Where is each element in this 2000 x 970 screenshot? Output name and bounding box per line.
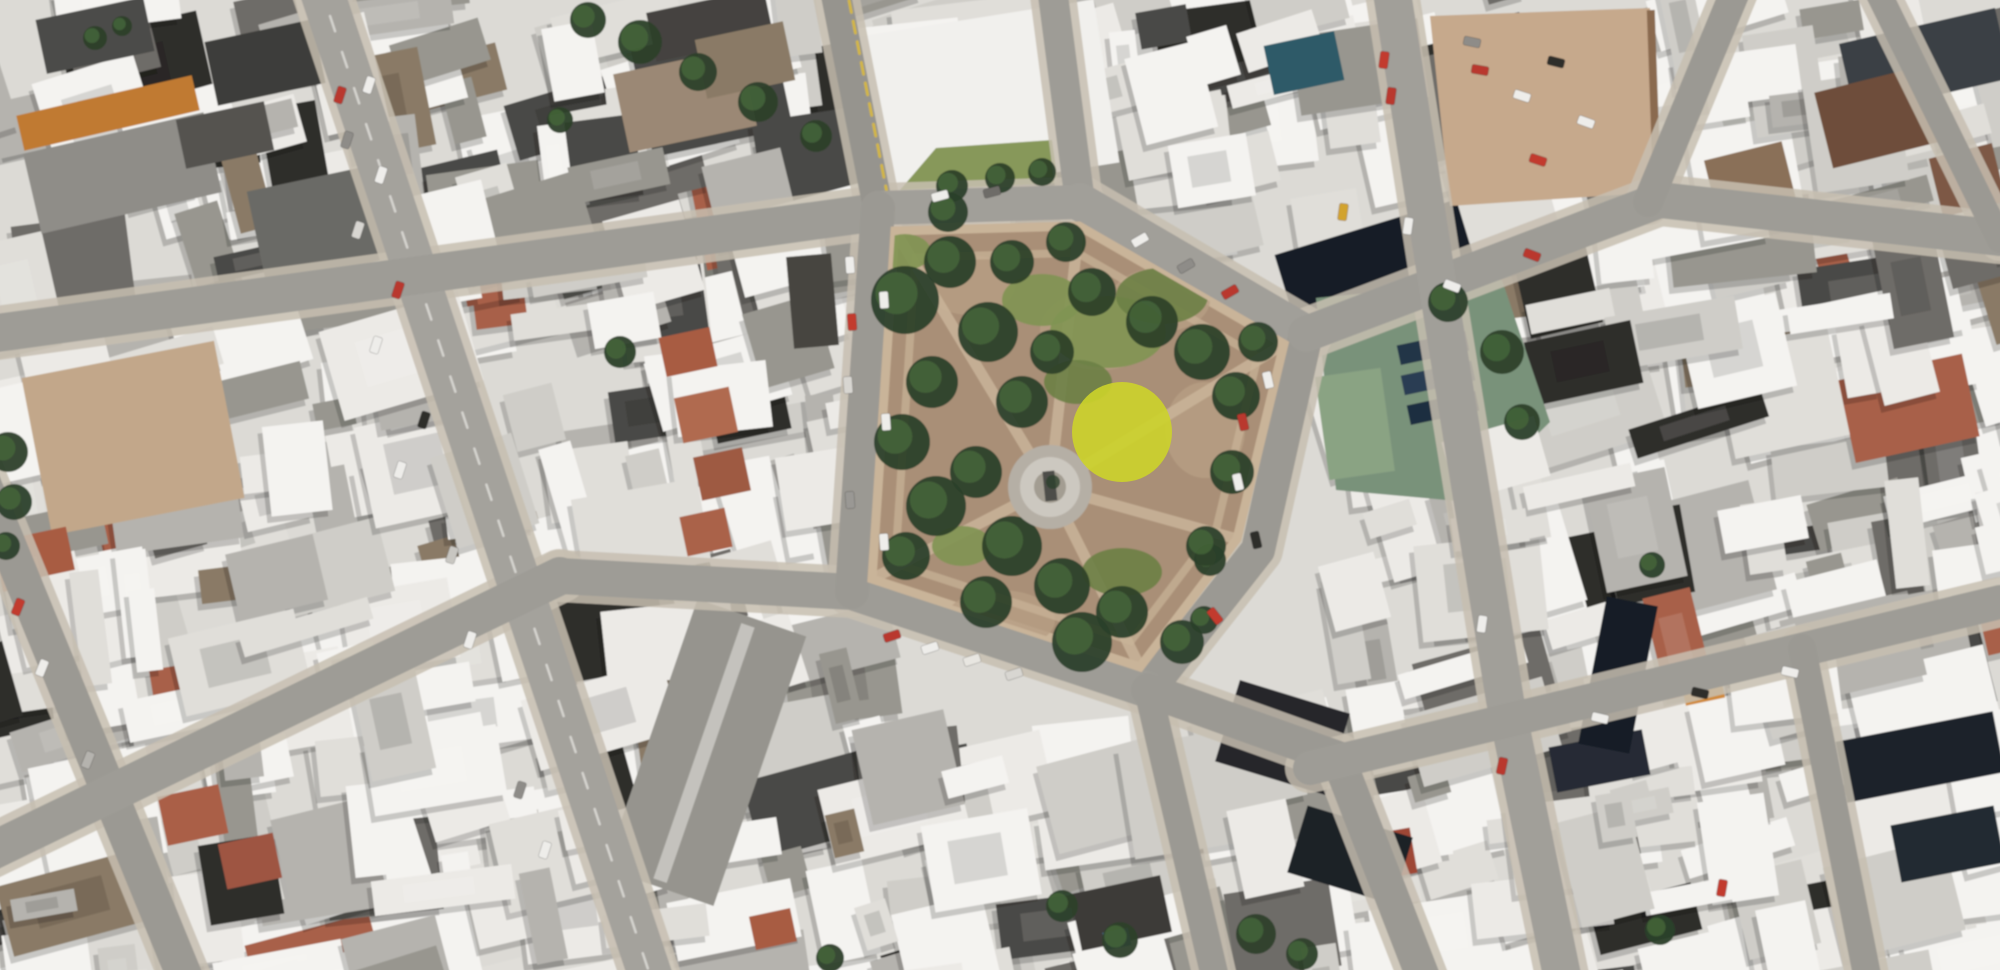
tree-canopy-highlight (1099, 591, 1131, 623)
tree-canopy-highlight (987, 166, 1006, 185)
parked-car (1385, 87, 1396, 105)
tree-canopy-highlight (1071, 272, 1101, 302)
tree-canopy-highlight (741, 86, 766, 111)
selected-location-marker[interactable] (1072, 382, 1172, 482)
tree-canopy-highlight (1288, 941, 1308, 961)
tree-canopy-highlight (1033, 334, 1060, 361)
tree-canopy-highlight (993, 244, 1020, 271)
tree-canopy-highlight (927, 241, 959, 273)
tree-canopy-highlight (986, 521, 1023, 558)
parked-car (1476, 615, 1487, 633)
tree-canopy-highlight (1192, 609, 1209, 626)
tree-canopy-highlight (1506, 407, 1528, 429)
tree-canopy-highlight (1056, 617, 1093, 654)
tree-canopy-highlight (621, 24, 648, 51)
tree-canopy-highlight (1129, 301, 1161, 333)
tree-canopy-highlight (962, 307, 999, 344)
tree-canopy-highlight (953, 451, 985, 483)
tree-canopy-highlight (1048, 893, 1068, 913)
tree-canopy-highlight (909, 361, 941, 393)
tree-canopy-highlight (1215, 376, 1245, 406)
aerial-imagery (0, 0, 2000, 970)
parked-car (847, 313, 857, 331)
tree-canopy-highlight (1104, 925, 1126, 947)
parked-car (845, 256, 855, 274)
parked-car (879, 291, 889, 309)
tree-canopy-highlight (1241, 326, 1266, 351)
tree-canopy-highlight (1030, 161, 1047, 178)
park-north-street (878, 202, 1080, 208)
tree-canopy-highlight (572, 5, 594, 27)
building-footprint (262, 420, 333, 516)
parked-car (843, 376, 853, 394)
tree-canopy-highlight (1038, 563, 1073, 598)
parked-car (1402, 217, 1413, 235)
tree-canopy-highlight (1163, 624, 1190, 651)
parked-car (1337, 203, 1348, 221)
tree-canopy-highlight (1641, 554, 1657, 570)
imagery-layer (0, 0, 2000, 970)
tree-canopy-highlight (606, 339, 626, 359)
tree-canopy-highlight (549, 109, 565, 125)
tree-canopy-highlight (1647, 918, 1666, 937)
tree-canopy-highlight (85, 28, 100, 43)
tree-canopy-highlight (963, 581, 995, 613)
tree-canopy-highlight (1239, 918, 1264, 943)
parked-car (845, 491, 855, 509)
parked-car (881, 413, 891, 431)
satellite-map-view[interactable] (0, 0, 2000, 970)
parked-car (1378, 51, 1389, 69)
tree-canopy-highlight (1483, 334, 1510, 361)
rooftop-detail (1187, 150, 1231, 188)
tree-canopy-highlight (885, 536, 915, 566)
tree-canopy-highlight (681, 56, 705, 80)
tree-canopy-highlight (999, 381, 1031, 413)
tree-canopy-highlight (802, 123, 822, 143)
dark-roof (786, 253, 839, 349)
parked-car (879, 533, 889, 551)
tree-canopy-highlight (1189, 530, 1214, 555)
tree-canopy-highlight (938, 173, 958, 193)
tree-canopy-highlight (113, 18, 125, 30)
tree-canopy-highlight (1049, 226, 1074, 251)
tree-canopy-highlight (818, 947, 835, 964)
rooftop-detail (947, 832, 1008, 884)
monument-greenery (1046, 475, 1060, 489)
tree-canopy-highlight (1178, 329, 1213, 364)
tree-canopy-highlight (910, 481, 947, 518)
